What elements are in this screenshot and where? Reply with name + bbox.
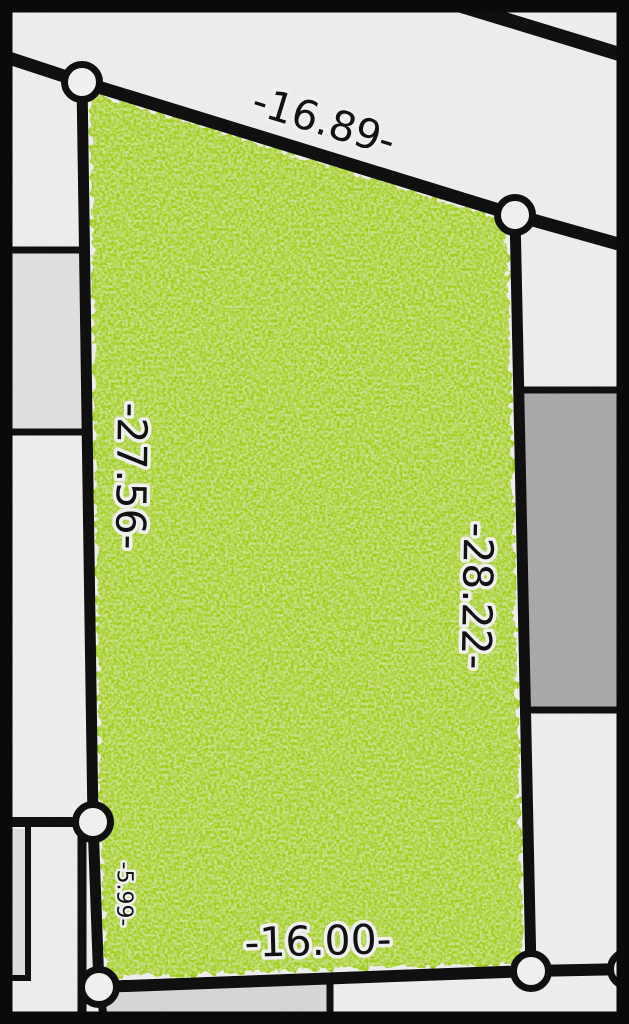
parcel-map-canvas: -16.89- -27.56- -28.22- -16.00- -5.99- — [0, 0, 629, 1024]
grain-overlay — [0, 0, 629, 1024]
map-svg: -16.89- -27.56- -28.22- -16.00- -5.99- — [0, 0, 629, 1024]
